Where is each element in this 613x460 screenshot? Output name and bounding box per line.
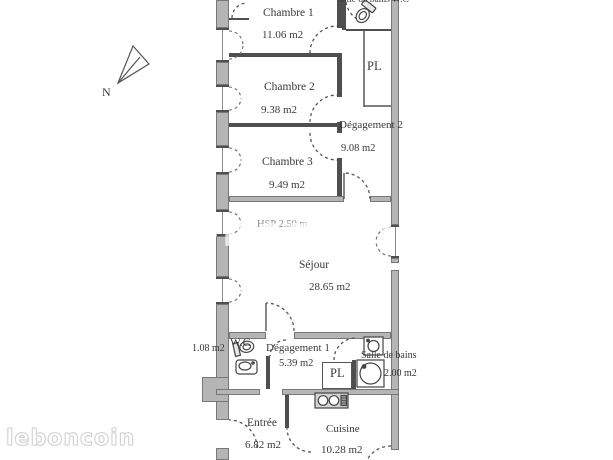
room-area-chambre1: 11.06 m2	[262, 30, 303, 41]
wall-segment	[391, 258, 399, 263]
ceiling-height-note: HSP 2.50 m	[257, 220, 308, 231]
stove-icon	[315, 393, 348, 408]
wall-segment	[229, 123, 342, 127]
room-area-degagement2: 9.08 m2	[341, 144, 375, 155]
room-area-chambre2: 9.38 m2	[261, 105, 297, 116]
wall-segment	[391, 0, 399, 225]
room-area-salle-de-bains: 2.00 m2	[384, 369, 417, 379]
wall-segment	[229, 53, 342, 57]
room-area-degagement1: 5.39 m2	[279, 359, 313, 370]
window	[216, 210, 229, 236]
wall-segment	[266, 356, 270, 389]
wall-segment	[337, 53, 342, 97]
wall-segment	[285, 395, 289, 428]
sink-icon	[236, 360, 257, 374]
wall-segment	[216, 174, 229, 210]
leboncoin-watermark: leboncoin	[6, 426, 135, 451]
room-area-chambre3: 9.49 m2	[269, 180, 305, 191]
window	[216, 28, 229, 62]
wall-segment	[216, 62, 229, 85]
wall-segment	[282, 389, 399, 395]
room-label-degagement2: Dégagement 2	[339, 120, 403, 131]
wall-segment	[216, 304, 229, 420]
room-label-salle-de-bains: Salle de bains	[361, 351, 417, 361]
room-label-sejour: Séjour	[299, 260, 329, 272]
closet-label-pl-bottom: PL	[330, 367, 345, 380]
room-label-salle-de-bains-wc: Salle de bains W.C	[337, 0, 409, 6]
room-area-sejour: 28.65 m2	[309, 282, 351, 293]
window	[216, 277, 229, 304]
wall-segment	[337, 158, 342, 196]
wall-segment	[216, 0, 229, 28]
wall-segment	[216, 112, 229, 146]
wall-segment	[216, 448, 229, 460]
compass-north-label: N	[102, 86, 111, 98]
wall-segment	[352, 360, 356, 389]
room-label-cuisine: Cuisine	[326, 424, 360, 435]
shower-icon	[357, 360, 384, 387]
window	[391, 225, 399, 258]
wall-segment	[216, 236, 229, 277]
room-label-chambre2: Chambre 2	[264, 82, 315, 94]
room-label-entree: Entrée	[247, 418, 277, 430]
wall-segment	[229, 18, 249, 20]
room-label-chambre3: Chambre 3	[262, 157, 313, 169]
wall-segment	[370, 196, 391, 202]
window	[216, 85, 229, 112]
room-area-entree: 6.82 m2	[245, 440, 281, 451]
wall-segment	[294, 332, 391, 339]
closet-label-pl-top: PL	[367, 60, 382, 73]
window	[216, 146, 229, 174]
compass-north-arrow	[118, 46, 149, 83]
floor-plan: Salle de bains W.C Chambre 1 11.06 m2 PL…	[0, 0, 613, 460]
wall-segment	[229, 196, 344, 202]
room-area-cuisine: 10.28 m2	[321, 445, 363, 456]
room-label-degagement1: Dégagement 1	[266, 343, 330, 354]
wall-segment	[216, 389, 260, 395]
room-label-wc: W.C	[230, 338, 250, 350]
room-label-chambre1: Chambre 1	[263, 8, 314, 20]
wall-segment	[346, 29, 391, 31]
room-area-wc: 1.08 m2	[192, 344, 225, 354]
